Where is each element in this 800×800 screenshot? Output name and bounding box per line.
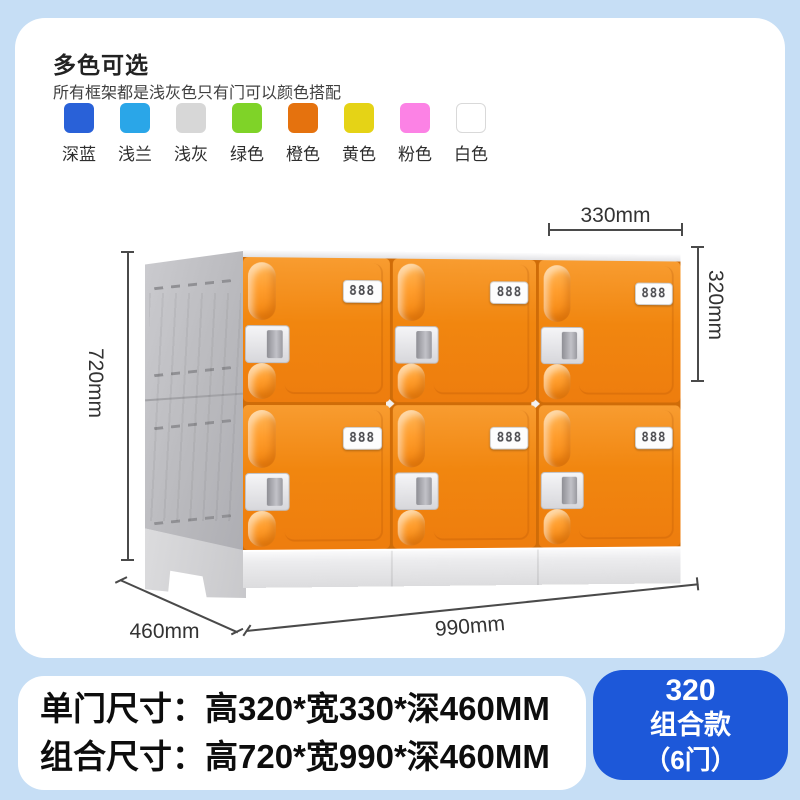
handle-slot (562, 332, 577, 359)
color-swatch-label: 浅兰 (118, 140, 152, 165)
color-swatch-item: 黄色 (331, 103, 387, 165)
color-swatch-item: 绿色 (219, 103, 275, 165)
color-swatch-label: 橙色 (286, 140, 320, 165)
hinge-bump (397, 364, 424, 400)
model-badge: 320 组合款 （6门） (593, 670, 788, 780)
color-swatch-item: 橙色 (275, 103, 331, 165)
color-swatch-label: 浅灰 (174, 140, 208, 165)
locker-door: 888 (539, 405, 680, 547)
dim-line-total-height (127, 251, 129, 561)
door-handle (394, 472, 438, 510)
dim-line-door-width (548, 229, 683, 231)
hinge-bump (248, 262, 276, 320)
colors-subtitle: 所有框架都是浅灰色只有门可以颜色搭配 (53, 79, 341, 103)
hinge-bump (544, 410, 571, 467)
hinge-bump (544, 364, 571, 399)
hinge-bump (248, 511, 276, 547)
badge-model-type: 组合款 (650, 708, 731, 743)
locker-illustration: 888888888888888888 (145, 243, 745, 633)
color-swatch-item: 浅灰 (163, 103, 219, 165)
color-swatch (288, 103, 318, 133)
color-swatch-item: 粉色 (387, 103, 443, 165)
dim-label-door-width: 330mm (548, 204, 683, 228)
color-swatch (120, 103, 150, 133)
color-swatch-item: 白色 (443, 103, 499, 165)
door-handle (541, 472, 584, 509)
color-swatch-row: 深蓝浅兰浅灰绿色橙色黄色粉色白色 (51, 103, 499, 165)
handle-slot (267, 478, 283, 506)
locker-door: 888 (539, 260, 680, 402)
locker-door: 888 (243, 257, 390, 402)
handle-slot (562, 477, 577, 504)
hinge-bump (248, 410, 276, 468)
hinge-bump (544, 265, 571, 322)
color-swatch (344, 103, 374, 133)
color-swatch-label: 白色 (454, 140, 488, 165)
color-swatch (456, 103, 486, 133)
locker-base (243, 546, 680, 588)
door-handle (394, 326, 438, 364)
color-swatch (232, 103, 262, 133)
badge-door-count: （6门） (644, 743, 736, 778)
combination-lock: 888 (635, 283, 673, 306)
color-swatch (64, 103, 94, 133)
door-handle (245, 473, 290, 511)
spec-combined: 组合尺寸：高720*宽990*深460MM (40, 733, 586, 781)
color-swatch-label: 粉色 (398, 140, 432, 165)
handle-slot (416, 477, 432, 505)
locker-front: 888888888888888888 (243, 250, 680, 588)
badge-model-number: 320 (665, 673, 715, 708)
hinge-bump (397, 264, 424, 322)
color-swatch (400, 103, 430, 133)
combination-lock: 888 (343, 280, 382, 303)
combination-lock: 888 (635, 427, 673, 449)
hinge-bump (544, 509, 571, 544)
color-swatch-item: 深蓝 (51, 103, 107, 165)
color-swatch-label: 黄色 (342, 140, 376, 165)
hinge-bump (397, 410, 424, 467)
product-card: 多色可选 所有框架都是浅灰色只有门可以颜色搭配 深蓝浅兰浅灰绿色橙色黄色粉色白色… (15, 18, 785, 658)
dim-label-depth: 460mm (117, 620, 212, 644)
combination-lock: 888 (490, 281, 528, 304)
spec-single-door: 单门尺寸：高320*宽330*深460MM (40, 685, 586, 733)
locker-door: 888 (393, 259, 537, 403)
handle-slot (416, 331, 432, 359)
colors-title: 多色可选 (53, 46, 149, 80)
hinge-bump (248, 363, 276, 399)
handle-slot (267, 330, 283, 358)
color-swatch-label: 绿色 (230, 140, 264, 165)
combination-lock: 888 (490, 427, 528, 450)
color-swatch (176, 103, 206, 133)
combination-lock: 888 (343, 427, 382, 450)
spec-bar: 单门尺寸：高320*宽330*深460MM 组合尺寸：高720*宽990*深46… (18, 676, 586, 790)
locker-door: 888 (243, 405, 390, 550)
locker-door: 888 (393, 405, 537, 549)
color-swatch-item: 浅兰 (107, 103, 163, 165)
color-swatch-label: 深蓝 (62, 140, 96, 165)
dim-label-total-height: 720mm (83, 348, 107, 418)
locker-door-grid: 888888888888888888 (243, 257, 680, 550)
locker-side-panel (145, 251, 243, 551)
hinge-bump (397, 510, 424, 546)
door-handle (541, 327, 584, 364)
door-handle (245, 325, 290, 363)
